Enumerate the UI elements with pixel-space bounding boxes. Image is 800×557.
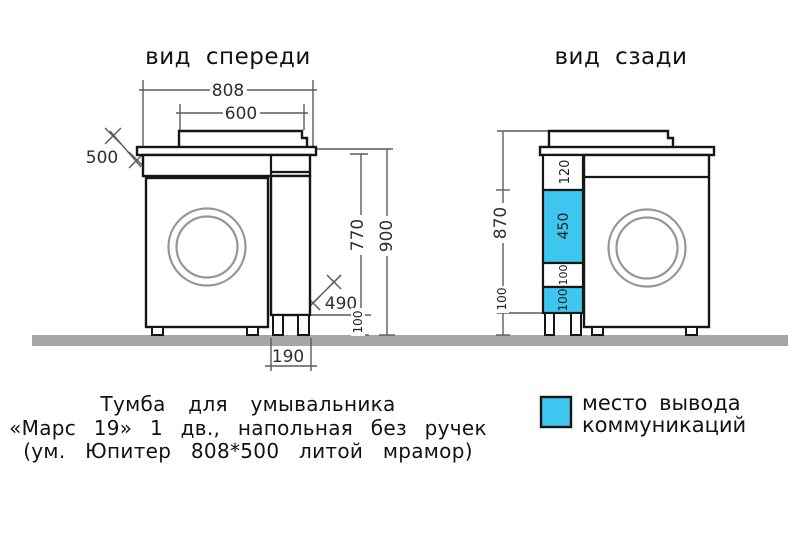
back-view-drawing: 870 100 120 450 100 100 [491,131,714,335]
dim-label-pedestal-width: 190 [272,347,304,367]
legend-label-line-2: коммуникаций [582,413,746,437]
washing-machine-foot [152,327,163,335]
front-view-drawing: 808 600 500 490 770 900 100 190 [86,80,397,371]
section-label-450: 450 [556,213,572,240]
dim-label-body-height: 770 [348,219,368,251]
section-label-100-mid: 100 [557,265,570,286]
caption-line-1: Тумба для умывальника [99,392,395,416]
pedestal-leg [298,315,309,335]
front-view-title: вид спереди [145,44,311,70]
legend-swatch [541,397,571,427]
legend: место вывода коммуникаций [541,391,746,437]
section-label-120: 120 [558,160,573,185]
caption-line-2: «Марс 19» 1 дв., напольная без ручек [9,416,487,440]
washing-machine-front [146,178,268,335]
pedestal-leg [273,315,283,335]
legend-label-line-1: место вывода [582,391,741,415]
floor-line [32,335,788,346]
sink-top-back [549,131,673,148]
dim-label-total-width: 808 [212,81,244,101]
product-caption: Тумба для умывальника «Марс 19» 1 дв., н… [9,392,487,463]
pedestal-leg [545,313,554,335]
washing-machine-body [146,178,268,327]
technical-drawing-page: вид спереди вид сзади [0,0,800,557]
washing-machine-foot [592,327,603,335]
pedestal-leg [571,313,581,335]
washing-machine-foot [247,327,258,335]
sink-top-front [179,131,307,148]
dim-label-depth: 500 [86,148,118,168]
pedestal-front [271,176,310,315]
vanity-drawing-svg: вид спереди вид сзади [0,0,800,557]
dim-label-sink-width: 600 [225,104,257,124]
dim-label-back-leg-height: 100 [495,288,509,311]
washing-machine-body-back [584,155,709,327]
dim-label-total-height: 900 [377,220,397,252]
dim-label-leg-height: 100 [351,311,365,334]
washing-machine-foot [686,327,697,335]
dim-label-back-height: 870 [491,207,511,239]
caption-line-3: (ум. Юпитер 808*500 литой мрамор) [23,439,473,463]
back-view-title: вид сзади [554,44,687,70]
section-label-100-bottom: 100 [556,289,570,312]
